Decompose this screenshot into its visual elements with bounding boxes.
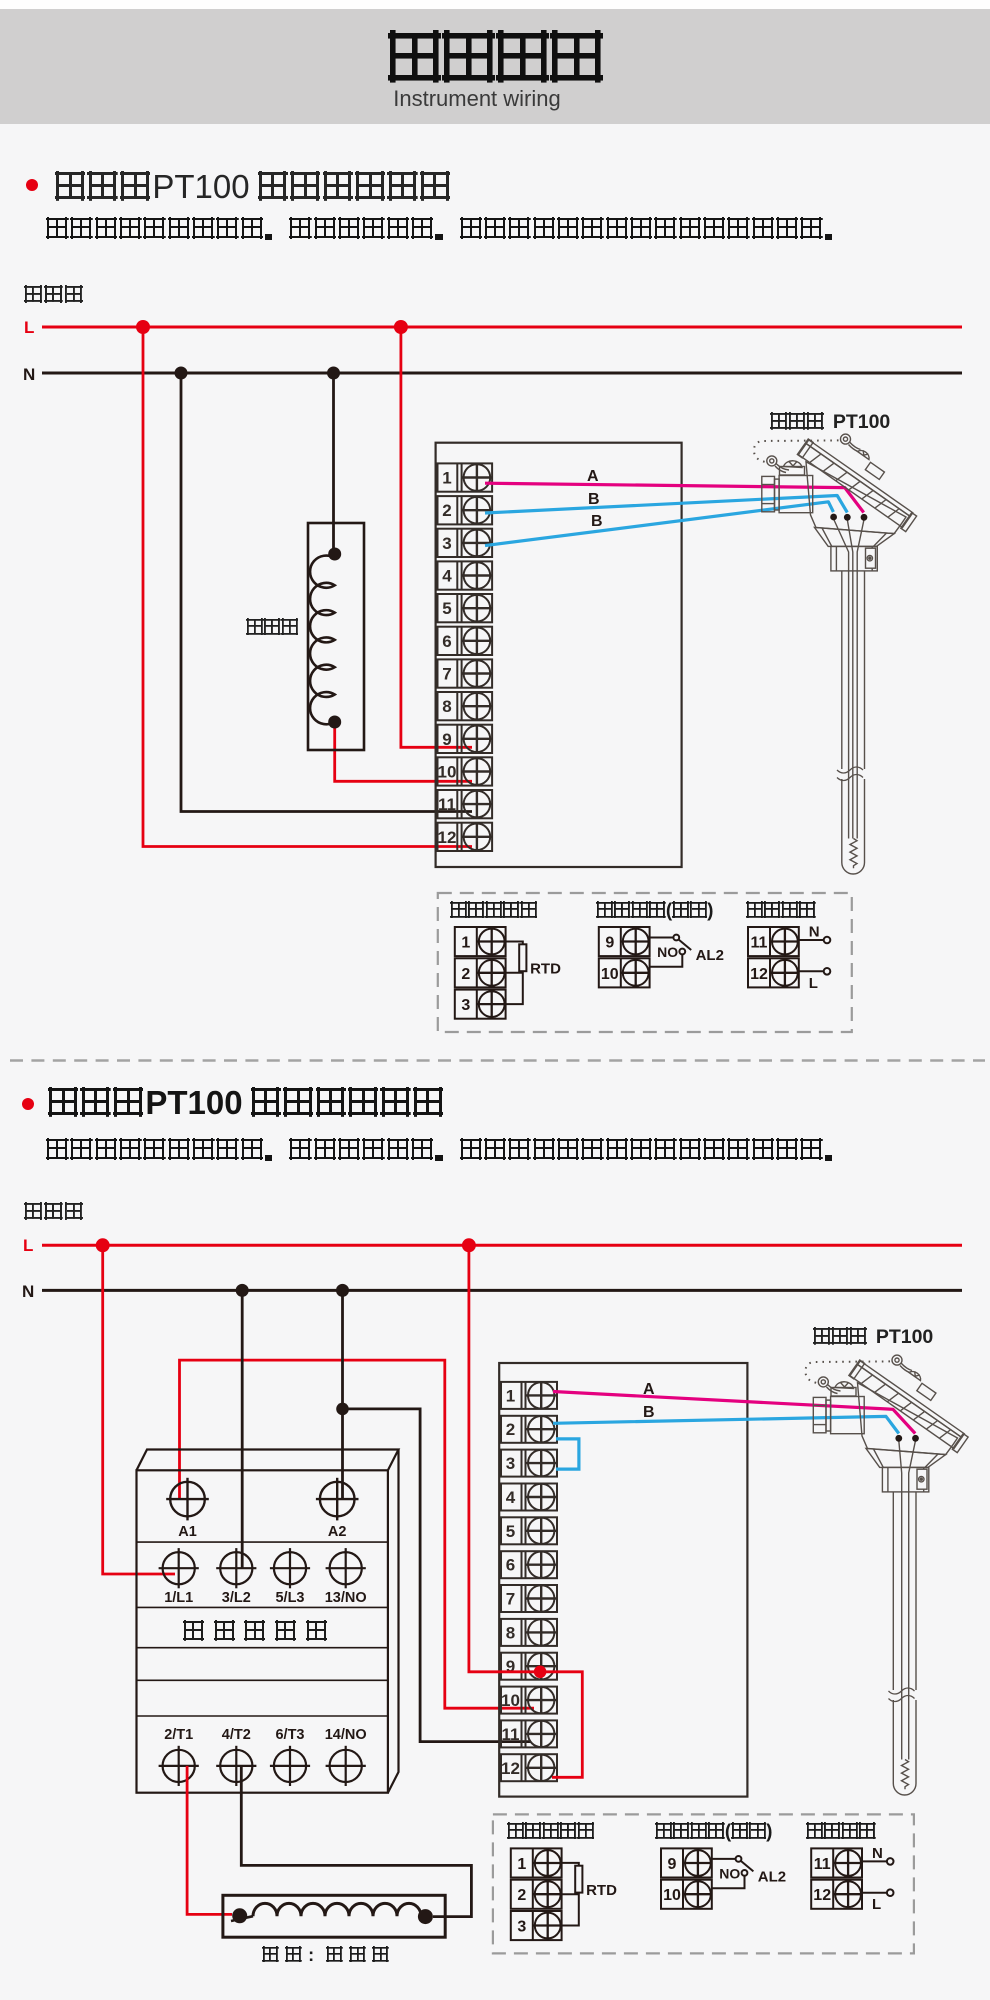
svg-text:A: A (587, 468, 599, 485)
svg-text:1: 1 (506, 1386, 515, 1405)
svg-text:B: B (643, 1404, 655, 1421)
svg-text:6/T3: 6/T3 (275, 1727, 304, 1743)
svg-text:4: 4 (442, 567, 452, 586)
svg-text:8: 8 (506, 1623, 515, 1642)
svg-text:N: N (23, 365, 35, 384)
svg-text:L: L (809, 975, 818, 992)
svg-text:5: 5 (442, 599, 451, 618)
svg-text:11: 11 (814, 1856, 831, 1873)
svg-text:1: 1 (442, 469, 451, 488)
svg-text:RTD: RTD (530, 961, 561, 978)
svg-text:7: 7 (506, 1590, 515, 1609)
svg-text:2: 2 (517, 1887, 526, 1904)
svg-text:4: 4 (506, 1488, 516, 1507)
svg-text:11: 11 (502, 1725, 520, 1744)
svg-text:8: 8 (442, 697, 451, 716)
svg-text:A1: A1 (178, 1524, 197, 1540)
svg-text:L: L (24, 318, 34, 337)
svg-text:9: 9 (605, 935, 614, 952)
svg-text:12: 12 (438, 828, 457, 847)
svg-text:12: 12 (501, 1759, 520, 1778)
svg-text:3: 3 (506, 1454, 515, 1473)
svg-text:A2: A2 (328, 1524, 347, 1540)
svg-text:5/L3: 5/L3 (275, 1590, 304, 1606)
svg-text:11: 11 (751, 935, 768, 952)
svg-text:10: 10 (663, 1887, 681, 1904)
svg-text:12: 12 (813, 1887, 831, 1904)
svg-text:4/T2: 4/T2 (222, 1727, 251, 1743)
svg-text:10: 10 (601, 966, 619, 983)
svg-text:N: N (22, 1282, 34, 1301)
svg-text:3: 3 (442, 534, 451, 553)
svg-text:B: B (591, 513, 603, 530)
svg-text:L: L (872, 1896, 881, 1913)
svg-text:2/T1: 2/T1 (164, 1727, 193, 1743)
svg-text:N: N (872, 1845, 883, 1862)
svg-text:L: L (23, 1236, 33, 1255)
svg-text:1: 1 (461, 935, 470, 952)
svg-text:A: A (643, 1381, 655, 1398)
svg-text:12: 12 (750, 966, 768, 983)
svg-text:2: 2 (461, 966, 470, 983)
svg-text:RTD: RTD (586, 1882, 617, 1899)
svg-text:6: 6 (442, 632, 451, 651)
svg-text:1/L1: 1/L1 (164, 1590, 193, 1606)
svg-text:10: 10 (501, 1691, 520, 1710)
svg-text:11: 11 (438, 795, 456, 814)
svg-text:NO: NO (719, 1865, 740, 1881)
svg-text:N: N (809, 924, 820, 941)
svg-text:10: 10 (438, 763, 457, 782)
svg-text:5: 5 (506, 1522, 515, 1541)
svg-text:7: 7 (442, 665, 451, 684)
svg-text:AL2: AL2 (758, 1868, 786, 1885)
svg-text:13/NO: 13/NO (325, 1590, 367, 1606)
svg-text:AL2: AL2 (696, 947, 724, 964)
svg-text:9: 9 (668, 1856, 677, 1873)
svg-text:1: 1 (517, 1856, 526, 1873)
svg-text:3: 3 (461, 997, 470, 1014)
svg-text:9: 9 (442, 730, 451, 749)
svg-text:9: 9 (506, 1657, 515, 1676)
svg-text:NO: NO (657, 944, 678, 960)
svg-text:3: 3 (517, 1919, 526, 1936)
svg-text:2: 2 (442, 501, 451, 520)
svg-text:3/L2: 3/L2 (222, 1590, 251, 1606)
svg-text:14/NO: 14/NO (325, 1727, 367, 1743)
svg-text:B: B (588, 491, 600, 508)
svg-text:6: 6 (506, 1556, 515, 1575)
svg-text:2: 2 (506, 1420, 515, 1439)
